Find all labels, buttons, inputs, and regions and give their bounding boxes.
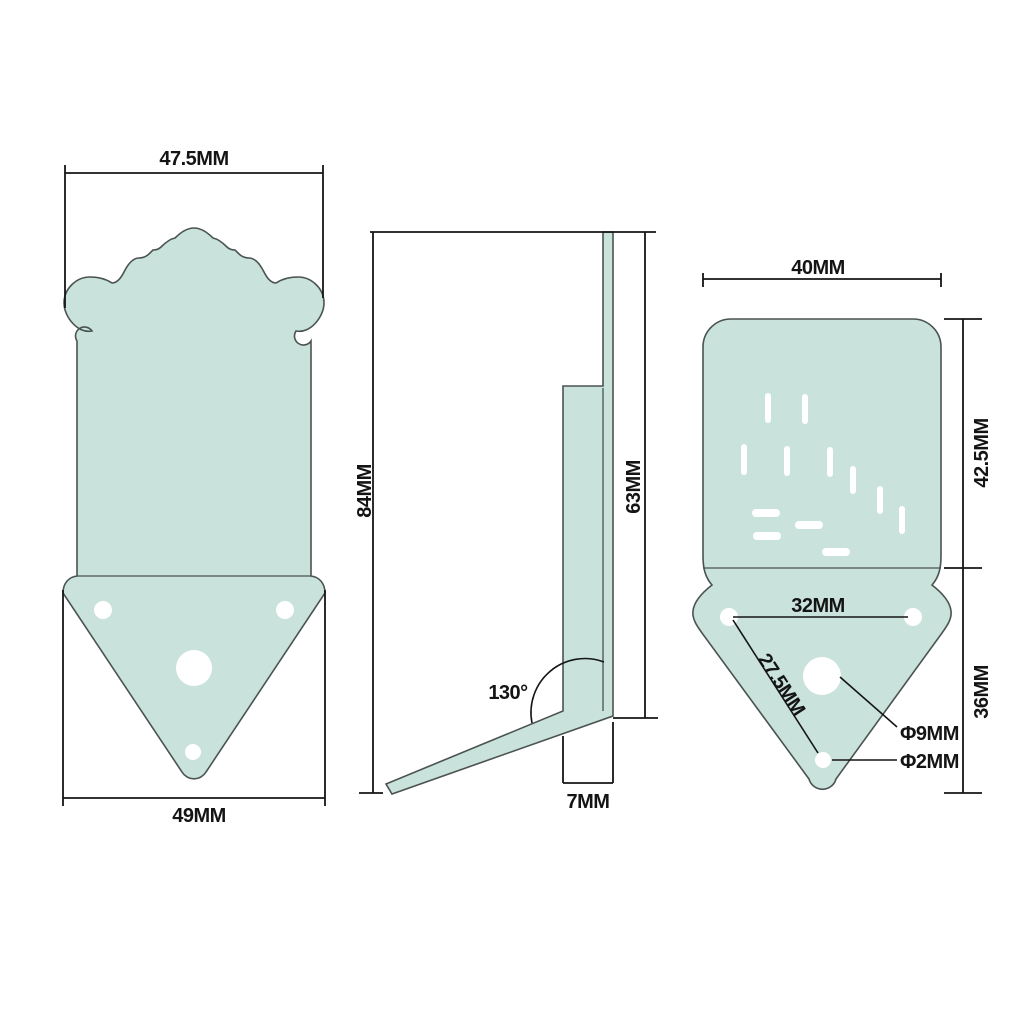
string-slot [795, 521, 823, 529]
technical-drawing: 47.5MM 49MM 84MM 63MM 130° 7MM [0, 0, 1024, 1024]
front-hole-top-left [94, 601, 112, 619]
side-foot-width-label: 7MM [567, 791, 610, 813]
string-slot [802, 394, 808, 424]
drawing-canvas: 47.5MM 49MM 84MM 63MM 130° 7MM [0, 0, 1024, 1024]
back-view: 40MM 42.5MM 36MM 32MM 27.5MM Φ9MM Φ2MM [693, 257, 993, 793]
string-slot [822, 548, 850, 556]
front-hole-center [176, 650, 212, 686]
back-height-dimensions [944, 319, 982, 793]
string-slot [784, 446, 790, 476]
back-small-hole-diameter-label: Φ2MM [900, 751, 959, 773]
back-top-width-label: 40MM [791, 257, 845, 279]
front-top-width-label: 47.5MM [159, 148, 228, 170]
string-slot [752, 509, 780, 517]
back-view-outline [693, 319, 951, 789]
string-slot [765, 393, 771, 423]
side-height-label: 84MM [354, 464, 376, 518]
back-bracket-height-label: 36MM [971, 665, 993, 719]
back-hole-center [803, 657, 841, 695]
side-view-outline [386, 232, 613, 794]
string-slot [827, 447, 833, 477]
side-bend-angle-label: 130° [488, 682, 528, 704]
front-hole-bottom [185, 744, 201, 760]
side-upper-height-label: 63MM [623, 460, 645, 514]
string-slot [753, 532, 781, 540]
front-hole-top-right [276, 601, 294, 619]
string-slot [899, 506, 905, 534]
back-hole-spacing-label: 32MM [791, 595, 845, 617]
back-center-hole-diameter-label: Φ9MM [900, 723, 959, 745]
string-slot [877, 486, 883, 514]
back-cover-height-label: 42.5MM [971, 418, 993, 487]
string-slot [741, 444, 747, 475]
string-slot [850, 466, 856, 494]
back-hole-bottom [815, 752, 831, 768]
front-bottom-width-label: 49MM [172, 805, 226, 827]
side-view: 84MM 63MM 130° 7MM [354, 232, 658, 813]
front-view-outline [63, 228, 325, 779]
front-view: 47.5MM 49MM [63, 148, 325, 827]
